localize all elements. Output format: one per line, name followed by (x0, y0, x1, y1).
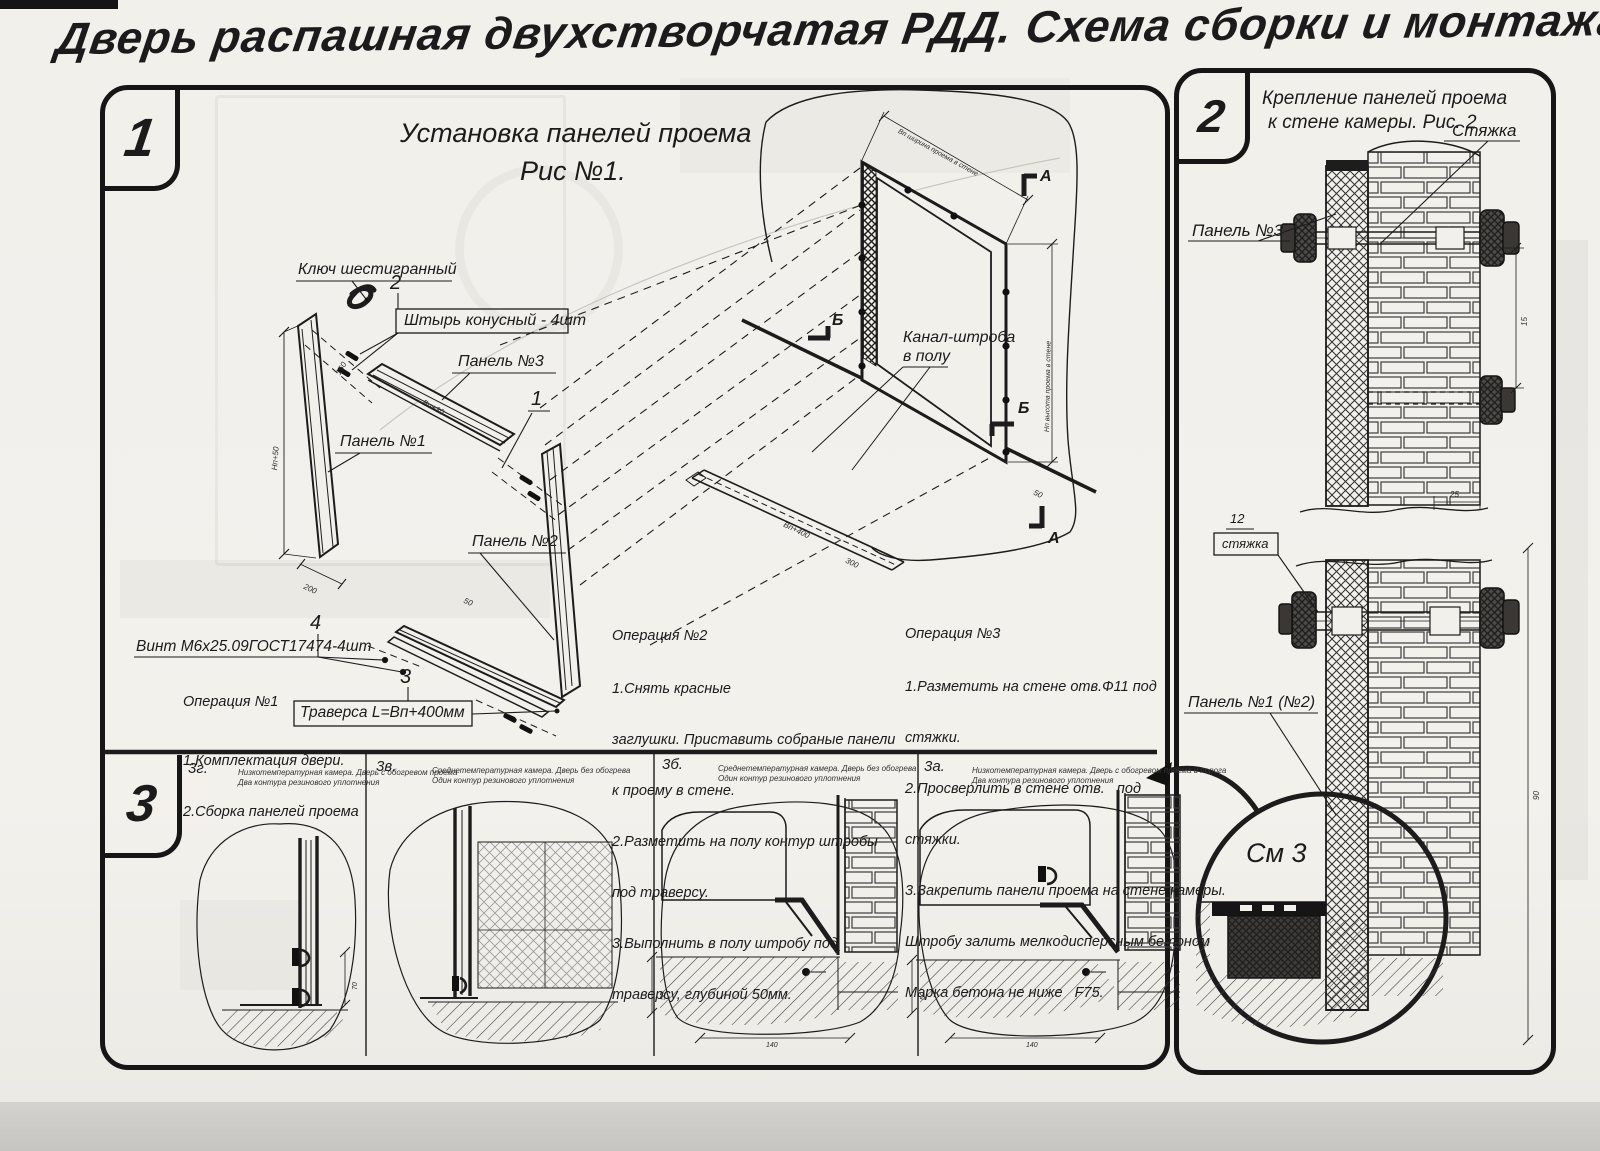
channel-label-line1: Канал-штроба (903, 329, 1015, 347)
fig-3b-caption2: Один контур резинового уплотнения (718, 774, 860, 784)
fig-3g-caption2: Два контура резинового уплотнения (238, 778, 379, 788)
tie-small-label: стяжка (1222, 536, 1268, 551)
screw-label: Винт М6х25.09ГОСТ17474-4шт (136, 638, 372, 656)
balloon-2: 2 (390, 272, 401, 295)
panel3-label-fig2: Панель №3 (1192, 221, 1283, 241)
operation-2-block: Операция №2 1.Снять красные заглушки. Пр… (612, 594, 895, 1038)
op3-title: Операция №3 (905, 626, 1226, 643)
op2-line: 3.Выполнить в полу штробу под (612, 936, 895, 953)
channel-label-line2: в полу (903, 348, 950, 366)
pin-label: Штырь конусный - 4шт (404, 312, 586, 330)
fig-3b-dim-50: 50 (660, 992, 667, 1000)
fig1-subtitle: Рис №1. (520, 156, 626, 187)
fig-3v-code: 3в. (376, 758, 396, 775)
drawing-sheet: Дверь распашная двухстворчатая РДД. Схем… (0, 0, 1600, 1151)
dim-height-panel1: Нп+50 (270, 446, 281, 470)
op3-line: Марка бетона не ниже F75. (905, 985, 1226, 1002)
panel12-label: Панель №1 (№2) (1188, 694, 1315, 712)
hex-key-icon (349, 287, 374, 307)
op2-line: под траверсу. (612, 885, 895, 902)
op3-line: 3.Закрепить панели проема на стене камер… (905, 883, 1226, 900)
op3-line: стяжки. (905, 730, 1226, 747)
op1-title: Операция №1 (183, 694, 359, 711)
op1-line: 2.Сборка панелей проема (183, 804, 359, 821)
fig-3a-caption2: Два контура резинового уплотнения (972, 776, 1113, 786)
op3-line: стяжки. (905, 832, 1226, 849)
op2-line: траверсу, глубиной 50мм. (612, 987, 895, 1004)
op3-line: 1.Разметить на стене отв.Ф11 под (905, 679, 1226, 696)
dim-90: 90 (1532, 791, 1541, 800)
op3-line: Штробу залить мелкодисперсным бетоном (905, 934, 1226, 951)
fig-3v-caption2: Один контур резинового уплотнения (432, 776, 574, 786)
fig-3g (197, 824, 356, 1050)
dim-15: 15 (1520, 317, 1529, 326)
fig-3a-dim-50: 50 (920, 992, 927, 1000)
operation-1-block: Операция №1 1.Комплектация двери. 2.Сбор… (183, 660, 359, 855)
op2-line: 2.Разметить на полу контур штробы (612, 834, 895, 851)
section-marker-b-left: Б (832, 312, 843, 330)
balloon-3: 3 (400, 666, 411, 689)
op2-line: к проему в стене. (612, 783, 895, 800)
dim-25: 25 (1450, 490, 1459, 499)
balloon-1: 1 (531, 388, 542, 411)
panel2-label: Панель №2 (472, 533, 558, 551)
tie-label: Стяжка (1452, 121, 1517, 141)
op2-line: 1.Снять красные (612, 681, 895, 698)
section-marker-a-bottom: А (1048, 530, 1060, 548)
fig-3v (388, 802, 621, 1044)
see-detail-3-label: См 3 (1246, 838, 1307, 869)
fig-3b-caption1: Среднетемпературная камера. Дверь без об… (718, 764, 916, 774)
section-marker-b-right: Б (1018, 400, 1029, 418)
fig-3a-code: 3а. (924, 758, 945, 775)
operation-3-block: Операция №3 1.Разметить на стене отв.Ф11… (905, 592, 1226, 1036)
fig-3v-caption1: Среднетемпературная камера. Дверь без об… (432, 766, 630, 776)
fig1-title: Установка панелей проема (400, 118, 751, 149)
balloon-4: 4 (310, 612, 321, 635)
section-marker-a-top: А (1040, 168, 1052, 186)
hex-key-label: Ключ шестигранный (298, 261, 457, 279)
fig-3g-dim-70: 70 (352, 982, 359, 990)
fig-3b-code: 3б. (662, 756, 683, 773)
fig2-title-line1: Крепление панелей проема (1262, 88, 1507, 110)
op2-title: Операция №2 (612, 628, 895, 645)
fig-3b-dim-140: 140 (766, 1042, 778, 1049)
tie-item-number: 12 (1230, 511, 1244, 526)
fig-3a-caption1: Низкотемпературная камера. Дверь с обогр… (972, 766, 1226, 776)
fig-3g-code: 3г. (188, 760, 208, 777)
panel1-label: Панель №1 (340, 433, 426, 451)
fig-3g-caption1: Низкотемпературная камера. Дверь с обогр… (238, 768, 457, 778)
fig2-title-line2: к стене камеры. Рис. 2 (1268, 112, 1477, 134)
panel3-label: Панель №3 (458, 353, 544, 371)
fig-3a-dim-140: 140 (1026, 1042, 1038, 1049)
op2-line: заглушки. Приставить собраные панели (612, 732, 895, 749)
